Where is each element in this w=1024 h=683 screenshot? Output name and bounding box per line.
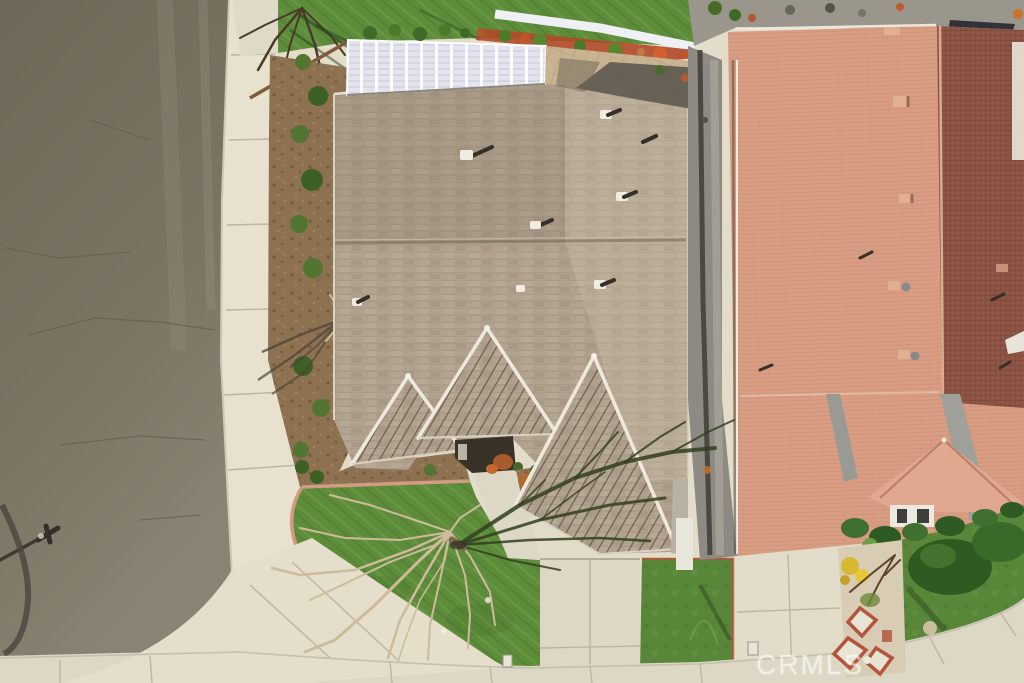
aerial-photo: CRMLS [0, 0, 1024, 683]
aerial-photo-canvas [0, 0, 1024, 683]
front-lawn-neighbor-strip [640, 558, 733, 672]
asphalt-street [0, 0, 232, 661]
neighbor-house-roof [728, 25, 1024, 556]
brick-walkway-neighbor [834, 540, 906, 678]
driveway-subject [540, 558, 640, 674]
side-wall-pillar [676, 518, 693, 570]
